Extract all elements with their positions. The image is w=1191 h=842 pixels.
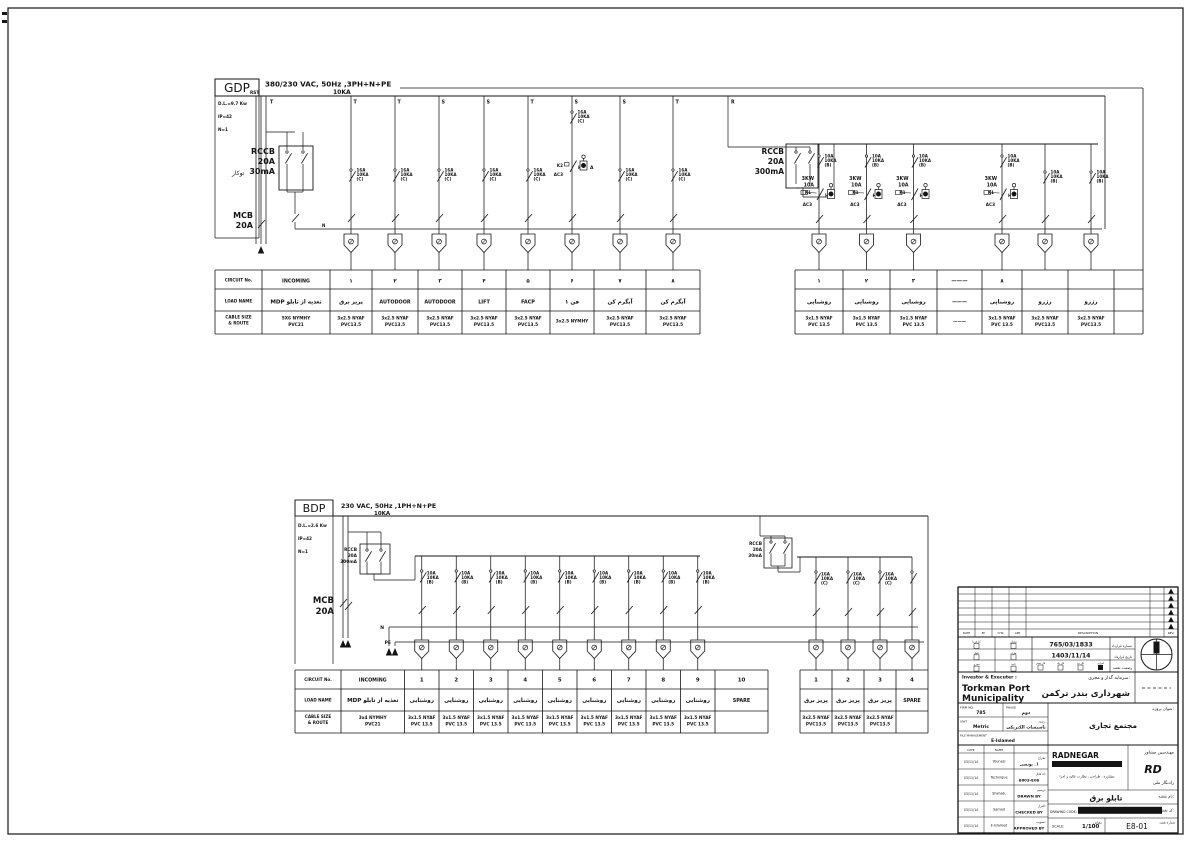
breaker-rating: (C)	[821, 581, 828, 586]
circle-glyph	[924, 184, 927, 187]
wire	[909, 608, 916, 616]
circuit-no: ۳	[912, 279, 916, 285]
breaker-icon	[662, 570, 664, 572]
revision-triangle-icon	[1168, 596, 1174, 601]
wire	[813, 608, 820, 616]
firm-no-label: FIRM NO.	[960, 706, 974, 710]
consultant-type-fa: مهندسین مشاور	[1143, 751, 1174, 756]
project-title: مجتمع تجاری	[1089, 721, 1137, 730]
revision-triangle-icon	[1168, 617, 1174, 622]
phase-label: T	[270, 100, 274, 106]
breaker-icon	[527, 169, 529, 171]
scale-value: 1/100	[1082, 824, 1099, 830]
investor-name-en: Torkman Port	[962, 684, 1031, 694]
wire	[489, 572, 495, 582]
stage-label: فاز صفر	[1035, 662, 1046, 665]
wire	[522, 606, 529, 614]
approval-checkbox	[974, 644, 979, 649]
single-line-diagram: GDP380/230 VAC, 50Hz ,3PH+N+PE10KAD.L.=9…	[0, 0, 1191, 842]
circuit-no: 6	[592, 678, 596, 684]
file-management-label: FILE MANAGEMENT	[960, 734, 987, 738]
circuit-no: 9	[696, 678, 700, 684]
cable-size: PVC 13.5	[583, 721, 605, 727]
load-name: LIFT	[478, 300, 490, 306]
load-name: روشنایی	[410, 698, 434, 704]
consultant-logo-icon: RD	[1144, 763, 1162, 776]
rccb-label: RCCB	[251, 147, 275, 156]
cable-size: PVC13.5	[518, 322, 538, 328]
breaker-rating: (C)	[401, 176, 408, 181]
wire	[660, 606, 667, 614]
row-header: CIRCUIT No.	[304, 677, 332, 682]
bdp-spec: D.L.=2.6 Kw	[298, 523, 327, 528]
status-label: وضعیت نقشه	[1113, 666, 1132, 670]
rccb-label: 300mA	[755, 167, 784, 176]
cable-size: PVC 13.5	[411, 721, 433, 727]
wire	[345, 602, 352, 610]
wire	[670, 214, 677, 222]
circle-glyph	[829, 192, 833, 196]
wire	[662, 572, 668, 582]
load-name: AUTODOOR	[379, 300, 410, 306]
load-name: MDP تغذیه از تابلو	[270, 300, 321, 306]
cable-size: 3x2.5 NYAF	[1031, 316, 1058, 322]
circuit-no: 4	[910, 678, 914, 684]
row-header: & ROUTE	[308, 720, 329, 725]
sign-name: Younesi	[993, 760, 1006, 764]
circuit-no: ۳	[438, 279, 442, 285]
cable-size: 3x2.5 NYAF	[834, 715, 861, 721]
breaker-icon	[1044, 171, 1046, 173]
wire	[420, 572, 426, 582]
load-name: روشنایی	[479, 698, 503, 704]
feeder-arrow-icon	[258, 246, 264, 254]
wire	[671, 171, 677, 181]
wire	[846, 573, 852, 583]
revision-triangle-icon	[1168, 589, 1174, 594]
drawing-sheet: GDP380/230 VAC, 50Hz ,3PH+N+PE10KAD.L.=9…	[0, 0, 1191, 842]
wire	[877, 608, 884, 616]
load-name: SPARE	[733, 698, 751, 704]
breaker-icon	[847, 571, 849, 573]
cable-size: 3x1.5 NYAF	[408, 715, 435, 721]
cable-size: 3x1.5 NYAF	[853, 316, 880, 322]
wire	[808, 153, 814, 163]
rccb-box	[279, 146, 313, 190]
wire	[453, 606, 460, 614]
wire	[865, 189, 872, 201]
investor-label-en: Investor & Executer :	[962, 675, 1017, 681]
wire	[626, 606, 633, 614]
sign-header: NAME	[995, 748, 1003, 752]
wire	[349, 171, 355, 181]
breaker-icon	[619, 169, 621, 171]
mcb-label: 20A	[236, 221, 254, 230]
investor-name-en: Municipality	[962, 694, 1024, 704]
rccb-box	[764, 538, 792, 568]
cable-size: PVC21	[365, 721, 381, 727]
load-name: روشنایی	[901, 300, 925, 306]
wire	[814, 573, 820, 583]
contactor-power: 10A	[851, 183, 862, 189]
cable-size: 3x2.5 NYAF	[1077, 316, 1104, 322]
cable-size: PVC 13.5	[618, 721, 640, 727]
breaker-rating: (C)	[853, 581, 860, 586]
breaker-rating: (B)	[872, 162, 879, 167]
bdp-voltage: 230 VAC, 50Hz ,1PH+N+PE	[341, 503, 436, 510]
scale-label: SCALE:	[1052, 825, 1064, 829]
unit-label: UNIT	[960, 720, 967, 724]
stage-label: فاز دو	[1076, 662, 1084, 665]
breaker-icon	[1090, 171, 1092, 173]
rccb-label: RCCB	[344, 547, 357, 553]
load-name: پریز برق	[868, 698, 892, 704]
row-header: CABLE SIZE	[225, 315, 252, 320]
approval-label: کارفرما	[972, 641, 981, 644]
wire	[769, 543, 775, 553]
wire	[878, 573, 884, 583]
cable-size: PVC 13.5	[514, 721, 536, 727]
breaker-icon	[1001, 155, 1003, 157]
phase-label: T	[398, 100, 402, 106]
wire	[570, 113, 576, 123]
contactor-label: K2	[557, 163, 563, 168]
sign-role-value: DRAWN BY	[1017, 794, 1041, 799]
circuit-no: 2	[846, 678, 850, 684]
wire	[379, 551, 385, 561]
circuit-no: ۶	[570, 279, 573, 285]
wire	[1043, 173, 1049, 183]
stage-checkbox	[1078, 665, 1083, 670]
circuit-no: ۸	[671, 279, 675, 285]
breaker-rating: (B)	[461, 580, 468, 585]
rccb-box	[360, 544, 390, 574]
cable-size: PVC13.5	[430, 322, 450, 328]
phase-label: S	[575, 100, 579, 106]
wire	[292, 214, 299, 222]
revision-triangle-icon	[1168, 624, 1174, 629]
gdp-breaking-capacity: 10KA	[333, 89, 351, 96]
wire	[910, 573, 916, 583]
cable-size: PVC 13.5	[903, 322, 925, 328]
bdp-panel-title: BDP	[303, 502, 326, 515]
phase-label: S	[487, 100, 491, 106]
circuit-no: 7	[627, 678, 631, 684]
circuit-no: INCOMING	[359, 678, 387, 684]
load-name: پریز برق	[804, 698, 828, 704]
phase-label: T	[531, 100, 535, 106]
breaker-icon	[490, 570, 492, 572]
gdp-mount-type: توکار	[231, 170, 245, 177]
load-name: فن ۱	[565, 300, 579, 306]
bdp-spec: N=1	[298, 549, 308, 554]
row-header: LOAD NAME	[304, 698, 331, 703]
edge-mark	[2, 12, 7, 15]
breaker-icon	[559, 570, 561, 572]
breaker-rating: (B)	[1051, 178, 1058, 183]
project-title-label: عنوان پروژه:	[1152, 706, 1174, 711]
cable-size: PVC13.5	[341, 322, 361, 328]
circle-glyph	[877, 184, 880, 187]
wire	[285, 153, 291, 163]
rev-header: CHK	[998, 631, 1004, 635]
wire	[696, 572, 702, 582]
phase-label: R	[731, 100, 735, 106]
rccb-label: RCCB	[762, 147, 785, 156]
cable-size: 3x1.5 NYAF	[615, 715, 642, 721]
cable-size: 3x2.5 NYAF	[866, 715, 893, 721]
load-name: آبگرم کن	[607, 298, 633, 306]
gdp-spec: IP=42	[218, 114, 232, 119]
contactor-label: AC3	[803, 202, 812, 207]
wire	[999, 215, 1006, 223]
cable-size: PVC13.5	[838, 721, 858, 727]
cable-size: 3x1.5 NYAF	[512, 715, 539, 721]
gdp-spec: N=1	[218, 127, 228, 132]
breaker-icon	[593, 570, 595, 572]
compass-needle	[1154, 642, 1160, 654]
contactor-power: 3KW	[896, 176, 909, 182]
consultant-bar-text: CONSULTING ENGINEERS CO.	[1067, 763, 1108, 767]
cable-size: PVC13.5	[474, 322, 494, 328]
rev-header: DATE	[963, 631, 971, 635]
discipline-label: رشته:	[1039, 720, 1047, 724]
circuit-no: ۲	[393, 279, 397, 285]
phase-label: T	[676, 100, 680, 106]
breaker-icon	[628, 570, 630, 572]
cable-size: 3x2.5 NYAF	[802, 715, 829, 721]
breaker-rating: (B)	[427, 580, 434, 585]
phase-label: T	[354, 100, 358, 106]
phase-label: S	[623, 100, 627, 106]
sign-date: 03/11/14	[964, 792, 978, 796]
approval-label: ناظر	[973, 652, 979, 655]
breaker-icon	[697, 570, 699, 572]
breaker-icon	[770, 541, 772, 543]
bdp-spec: IP=42	[298, 536, 312, 541]
investor-name-fa: شهرداری بندر ترکمن	[1042, 689, 1130, 699]
circuit-no: ۲	[865, 279, 869, 285]
wire	[525, 214, 532, 222]
wire	[816, 215, 823, 223]
cable-size: 3x2.5 NYAF	[470, 316, 497, 322]
contactor-label: AC3	[897, 202, 906, 207]
rev-header: DESCRIPTION	[1078, 631, 1098, 635]
breaker-rating: (B)	[919, 162, 926, 167]
gdp-voltage: 380/230 VAC, 50Hz ,3PH+N+PE	[265, 80, 391, 89]
approval-checkbox	[1011, 666, 1016, 671]
cable-size: 3x1.5 NYAF	[805, 316, 832, 322]
edge-mark	[2, 20, 7, 23]
wire	[455, 572, 461, 582]
breaker-rating: (C)	[490, 176, 497, 181]
cable-size: PVC13.5	[385, 322, 405, 328]
load-name: پریز برق	[836, 698, 860, 704]
rccb-label: 20A	[753, 547, 763, 553]
load-name: روشنایی	[651, 698, 675, 704]
load-name: رزرو	[1037, 300, 1051, 306]
cable-size: PVC 13.5	[445, 721, 467, 727]
consultant-name-fa: رادنگار ملی	[1153, 780, 1174, 786]
circuit-no: 5	[558, 678, 562, 684]
cable-size: PVC13.5	[610, 322, 630, 328]
feeder-arrow-icon	[340, 640, 346, 648]
cable-size: PVC13.5	[1081, 322, 1101, 328]
sign-role-label: تصویب:	[1036, 820, 1046, 824]
wire	[488, 606, 495, 614]
wire	[393, 171, 399, 181]
breaker-icon	[815, 571, 817, 573]
cable-size: 3x2.5 NYAF	[381, 316, 408, 322]
breaker-rating: (C)	[445, 176, 452, 181]
contactor-power: 3KW	[802, 176, 815, 182]
breaker-icon	[286, 151, 288, 153]
drawing-code-label-en: DRAWING CODE:	[1050, 810, 1077, 814]
cable-size: PVC 13.5	[480, 721, 502, 727]
gdp-panel-title: GDP	[224, 81, 250, 95]
sign-date: 03/11/14	[964, 824, 978, 828]
cable-size: 3x1.5 NYAF	[477, 715, 504, 721]
ammeter-label: A	[590, 165, 594, 171]
sign-role-label: طراح:	[1038, 756, 1046, 760]
sign-date: 03/11/14	[964, 776, 978, 780]
load-name: روشنایی	[807, 300, 831, 306]
wire	[570, 161, 577, 173]
circuit-no: ۴	[482, 279, 486, 285]
wire	[591, 606, 598, 614]
consultant-name-en: RADNEGAR	[1052, 751, 1099, 760]
cable-size: 5X6 NYMHY	[282, 316, 311, 322]
wire	[794, 153, 800, 163]
approval-label: طراح	[1011, 652, 1017, 655]
cable-size: 3x2.5 NYAF	[426, 316, 453, 322]
cable-size: PVC 13.5	[652, 721, 674, 727]
wire	[524, 572, 530, 582]
breaker-rating: (B)	[530, 580, 537, 585]
circuit-no: 3	[878, 678, 882, 684]
cable-size: PVC13.5	[806, 721, 826, 727]
sign-role-label: کنترل:	[1038, 804, 1046, 808]
sign-name: Samad	[993, 808, 1005, 812]
load-name: روشنایی	[548, 698, 572, 704]
approval-checkbox	[974, 666, 979, 671]
load-name: روشنایی	[990, 300, 1014, 306]
box	[565, 163, 570, 167]
sign-header: DATE	[967, 748, 975, 752]
circle-glyph	[1012, 184, 1015, 187]
load-name: آبگرم کن	[660, 298, 686, 306]
breaker-rating: (B)	[1097, 178, 1104, 183]
titleblock-border	[958, 587, 1178, 833]
breaker-rating: (C)	[357, 176, 364, 181]
gdp-spec: D.L.=9.7 Kw	[218, 101, 247, 106]
rev-header: BY	[982, 631, 986, 635]
contactor-power: 10A	[987, 183, 998, 189]
contract-date-label: تاریخ قرارداد	[1114, 655, 1132, 659]
stage-label: اجرایی	[1097, 662, 1105, 665]
circle-glyph	[581, 163, 585, 167]
breaker-icon	[524, 570, 526, 572]
wire	[845, 608, 852, 616]
breaker-icon	[672, 169, 674, 171]
load-name: رزرو	[1083, 300, 1097, 306]
breaker-rating: (B)	[634, 580, 641, 585]
file-management-value: E-Islamed	[991, 738, 1015, 744]
wire	[419, 606, 426, 614]
sign-role-value: ا . یونسی	[1020, 762, 1039, 767]
row-header: LOAD NAME	[225, 299, 252, 304]
rev-header: APP	[1015, 631, 1021, 635]
wire	[627, 572, 633, 582]
cable-size: 3x1.5 NYAF	[988, 316, 1015, 322]
breaker-icon	[380, 549, 382, 551]
circuit-no: 8	[661, 678, 665, 684]
contactor-label: AC3	[986, 202, 995, 207]
page-border	[8, 8, 1183, 834]
rccb-label: 30mA	[249, 167, 275, 176]
load-name: ———	[952, 300, 967, 306]
wire	[695, 606, 702, 614]
wire	[1000, 189, 1007, 201]
cable-size: PVC 13.5	[856, 322, 878, 328]
contactor-label: AC3	[850, 202, 859, 207]
wire	[365, 551, 371, 561]
feeder-arrow-icon	[392, 648, 398, 656]
wire	[301, 153, 307, 163]
drawing-name: تابلو برق	[1089, 794, 1122, 803]
wire	[526, 171, 532, 181]
sign-name: Technique	[989, 776, 1007, 780]
cable-size: 3x1.5 NYAF	[581, 715, 608, 721]
incoming-phases: RST	[250, 90, 259, 96]
cable-size: 3x1.5 NYAF	[546, 715, 573, 721]
sign-role-value: APPROVED BY	[1014, 826, 1045, 831]
wire	[481, 214, 488, 222]
contactor-power: 10A	[898, 183, 909, 189]
cable-size: 3x2.5 NYAF	[337, 316, 364, 322]
stage-checkbox	[1038, 665, 1043, 670]
contactor-power: 10A	[804, 183, 815, 189]
circuit-no: INCOMING	[282, 279, 310, 285]
pe-bus-label: PE	[385, 640, 391, 646]
cable-size: PVC13.5	[1035, 322, 1055, 328]
wire	[864, 215, 871, 223]
drawing-code: GN/TKM/CM/EX/DESIGN/PH/E8/03	[1096, 809, 1144, 813]
sheet-number: E8-01	[1126, 822, 1148, 831]
breaker-rating: (C)	[626, 176, 633, 181]
circuit-no: 3	[489, 678, 493, 684]
circuit-no: 4	[523, 678, 527, 684]
cable-size: 3x2.5 NYAF	[606, 316, 633, 322]
wire	[340, 599, 347, 607]
load-name: MDP تغذیه از تابلو	[347, 698, 398, 704]
wire	[557, 606, 564, 614]
row-header: CIRCUIT No.	[225, 278, 253, 283]
load-name: پریز برق	[339, 300, 363, 306]
breaker-rating: (B)	[703, 580, 710, 585]
sheet-number-label: شماره نقشه	[1159, 821, 1175, 825]
breaker-rating: (C)	[534, 176, 541, 181]
circuit-no: ۱	[817, 279, 820, 285]
wire	[911, 215, 918, 223]
breaker-rating: (B)	[1008, 162, 1015, 167]
load-name: FACP	[521, 300, 535, 306]
circuit-no: ۱	[349, 279, 352, 285]
breaker-icon	[438, 169, 440, 171]
cable-size: 3x2.5 NYMHY	[556, 319, 589, 325]
cable-size: PVC 13.5	[549, 721, 571, 727]
breaker-icon	[911, 571, 913, 573]
